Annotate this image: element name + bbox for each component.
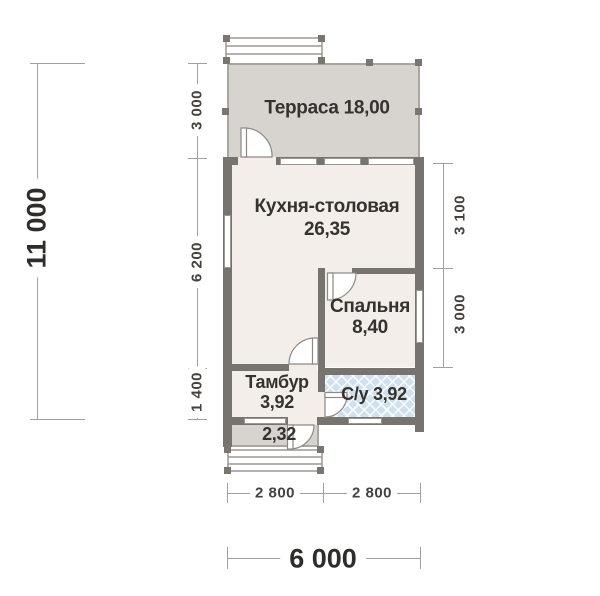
dim-left-inner-tick-1 <box>188 63 207 64</box>
dim-bottom-left-label: 2 800 <box>250 485 300 502</box>
tambour-area: 3,92 <box>245 392 309 412</box>
bathroom-name: С/у <box>341 384 368 404</box>
kitchen-label: Кухня-столовая 26,35 <box>255 195 400 241</box>
terrace-label: Терраса 18,00 <box>264 97 389 120</box>
kitchen-name: Кухня-столовая <box>255 195 400 218</box>
dim-left-inner-tick-2 <box>188 158 207 159</box>
dim-bottom-right-label: 2 800 <box>347 485 397 502</box>
bedroom-label: Спальня 8,40 <box>330 296 410 338</box>
dim-bottom-tick-2 <box>323 483 324 503</box>
floor-plan: Терраса 18,00 Кухня-столовая 26,35 Спаль… <box>0 0 600 596</box>
dim-right-line <box>443 163 444 367</box>
bedroom-name: Спальня <box>330 296 410 317</box>
dim-left-bottom-label: 1 400 <box>189 366 206 418</box>
entrance-steps <box>228 448 322 472</box>
dim-right-top-label: 3 100 <box>452 189 469 241</box>
dim-right-tick-2 <box>433 268 453 269</box>
terrace-door <box>241 128 272 157</box>
dim-left-total-tick-top <box>30 63 85 64</box>
dim-left-total-tick-bottom <box>30 419 85 420</box>
dim-right-tick-1 <box>433 163 453 164</box>
kitchen-tambour-door <box>289 338 318 364</box>
dim-bottom-total-tick-1 <box>227 547 228 569</box>
terrace-steps <box>226 38 322 62</box>
dim-right-tick-3 <box>433 367 453 368</box>
dim-left-top-label: 3 000 <box>189 84 206 136</box>
dim-right-bottom-label: 3 000 <box>452 288 469 340</box>
dim-left-mid-label: 6 200 <box>189 236 206 288</box>
dim-left-total-label: 11 000 <box>22 178 53 277</box>
terrace-area: 18,00 <box>344 98 390 119</box>
dim-bottom-total-label: 6 000 <box>280 544 366 575</box>
dim-bottom-tick-1 <box>227 483 228 503</box>
porch-area: 2,32 <box>262 424 296 444</box>
dim-left-inner-tick-4 <box>188 419 207 420</box>
dim-bottom-tick-3 <box>420 483 421 503</box>
terrace-name: Терраса <box>264 98 338 119</box>
bathroom-area: 3,92 <box>373 384 407 404</box>
kitchen-area: 26,35 <box>255 218 400 241</box>
bedroom-area: 8,40 <box>330 317 410 338</box>
doors-and-steps-layer <box>0 0 600 596</box>
dim-bottom-total-tick-2 <box>420 547 421 569</box>
bathroom-label: С/у 3,92 <box>341 384 407 404</box>
tambour-name: Тамбур <box>245 372 309 392</box>
porch-label: 2,32 <box>262 424 296 444</box>
tambour-label: Тамбур 3,92 <box>245 372 309 412</box>
